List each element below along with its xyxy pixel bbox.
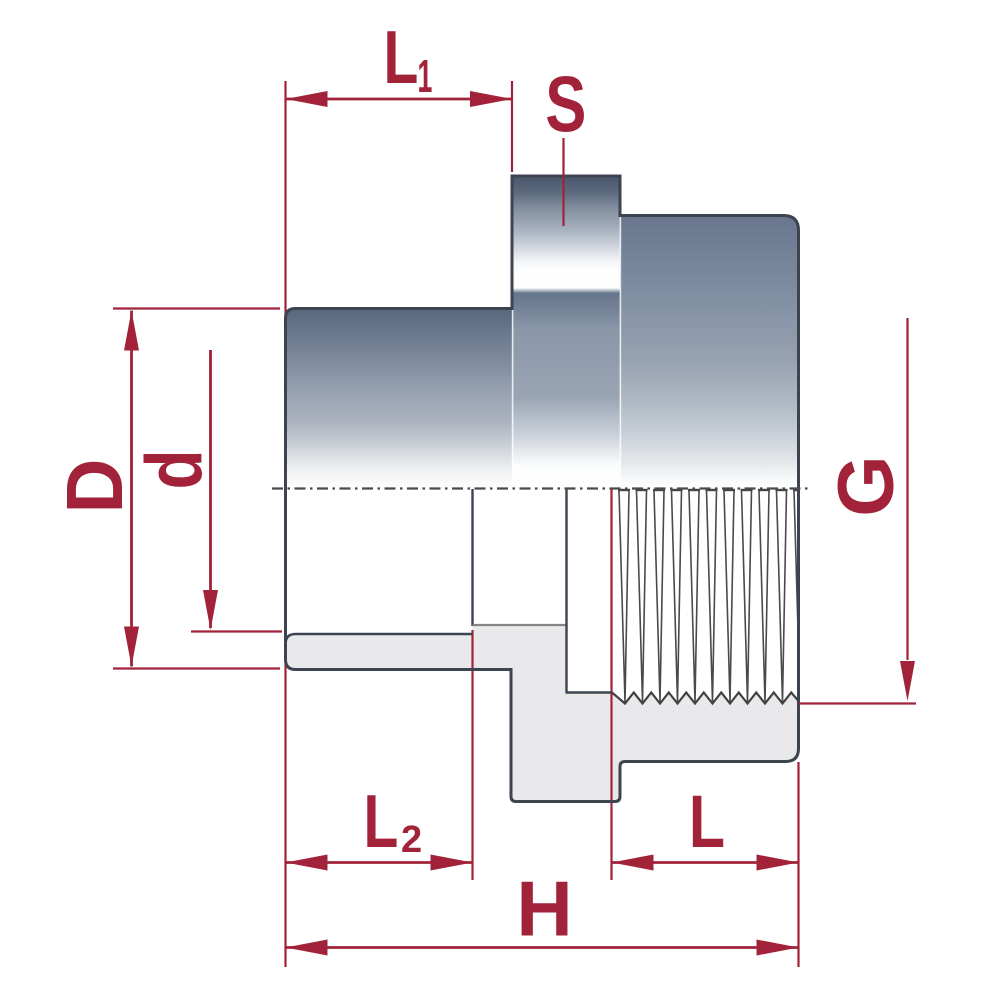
svg-text:S: S bbox=[545, 61, 586, 149]
svg-text:L: L bbox=[364, 781, 399, 864]
svg-text:H: H bbox=[516, 865, 572, 953]
svg-text:G: G bbox=[821, 455, 910, 516]
svg-text:L: L bbox=[384, 17, 419, 100]
svg-text:D: D bbox=[49, 459, 139, 514]
svg-text:1: 1 bbox=[418, 50, 433, 101]
svg-text:2: 2 bbox=[401, 819, 422, 861]
svg-text:d: d bbox=[129, 449, 219, 489]
svg-text:L: L bbox=[689, 781, 725, 864]
